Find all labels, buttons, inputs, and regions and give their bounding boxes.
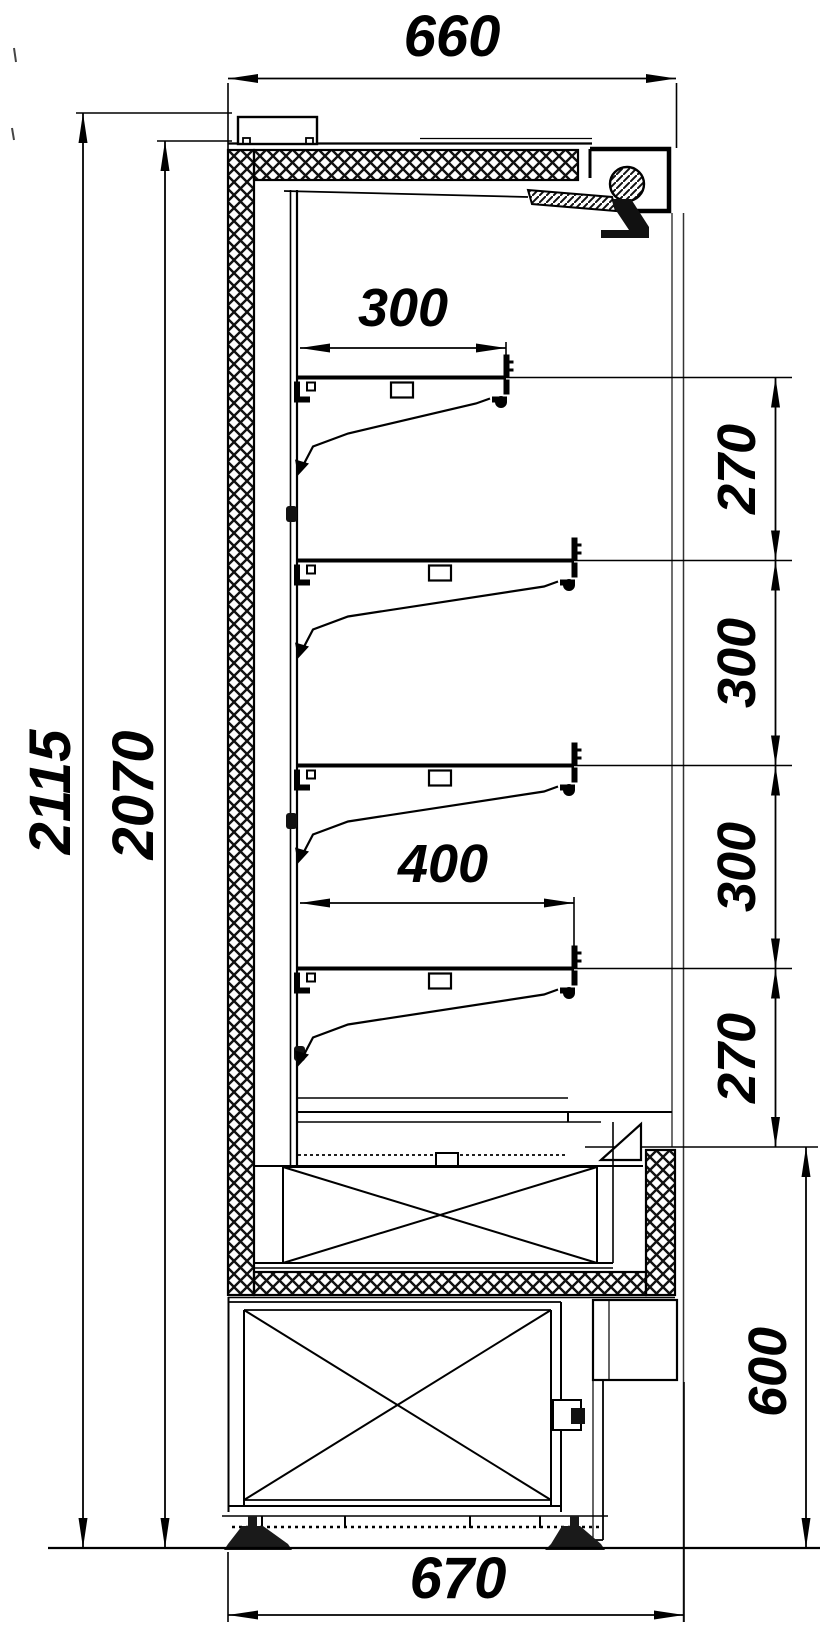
insulation-envelope: [228, 150, 675, 1298]
base-height-label: 600: [738, 1327, 798, 1417]
shelf-bracket: [302, 582, 558, 651]
technical-drawing-page: 2115 2070 660: [0, 0, 836, 1648]
shelf-clip: [391, 383, 413, 398]
well-clip: [436, 1153, 458, 1167]
leveling-foot: [224, 1516, 292, 1550]
price-rail: [492, 355, 514, 409]
dimension-shelf-gaps: 270 300 300 270: [585, 378, 818, 1148]
gap-2-label: 300: [707, 618, 767, 708]
leveling-foot: [545, 1516, 605, 1550]
cabinet-section-drawing: 2115 2070 660: [0, 0, 836, 1648]
inner-height-label: 2070: [101, 730, 166, 860]
front-base-insulation: [646, 1150, 675, 1295]
dimension-shelf-300: 300: [300, 278, 506, 360]
top-width-label: 660: [404, 4, 501, 69]
shelf-400-label: 400: [397, 834, 488, 894]
machine-compartment: [222, 1297, 677, 1550]
inner-ceiling-line: [284, 191, 528, 197]
return-air-flap: [601, 1124, 641, 1160]
gap-1-label: 270: [707, 424, 767, 515]
bottom-well: [254, 1098, 672, 1268]
lamp-section: [610, 167, 644, 201]
shelf-support-pin: [286, 506, 297, 522]
back-liner-panel: [254, 180, 305, 1272]
shelf-bracket: [302, 399, 490, 468]
shelf-clip: [429, 566, 451, 581]
ceiling-insulation: [254, 150, 578, 180]
shelf-clip: [429, 771, 451, 786]
shelf-bracket: [302, 990, 558, 1059]
front-face-lines: [672, 213, 684, 1622]
bottom-insulation: [254, 1272, 646, 1295]
dimension-bottom-depth: 670: [228, 1382, 684, 1622]
shelf-300-label: 300: [358, 278, 448, 338]
back-wall-insulation: [228, 150, 254, 1295]
dimension-shelf-400: 400: [300, 834, 574, 950]
dimension-base-height: 600: [738, 1147, 811, 1548]
shelf-clip: [429, 974, 451, 989]
price-rail: [560, 946, 582, 1000]
kick-step-panel: [593, 1300, 677, 1380]
dimension-inner-height: 2070: [101, 141, 232, 1548]
price-rail: [560, 538, 582, 592]
shelf-support-pin: [286, 813, 297, 829]
bottom-depth-label: 670: [410, 1546, 507, 1611]
gap-3-label: 300: [707, 822, 767, 912]
price-rail: [560, 743, 582, 797]
scan-artifacts: [12, 48, 16, 140]
gap-4-label: 270: [707, 1013, 767, 1104]
overall-height-label: 2115: [18, 729, 83, 855]
air-duct-outlet: [528, 190, 616, 211]
